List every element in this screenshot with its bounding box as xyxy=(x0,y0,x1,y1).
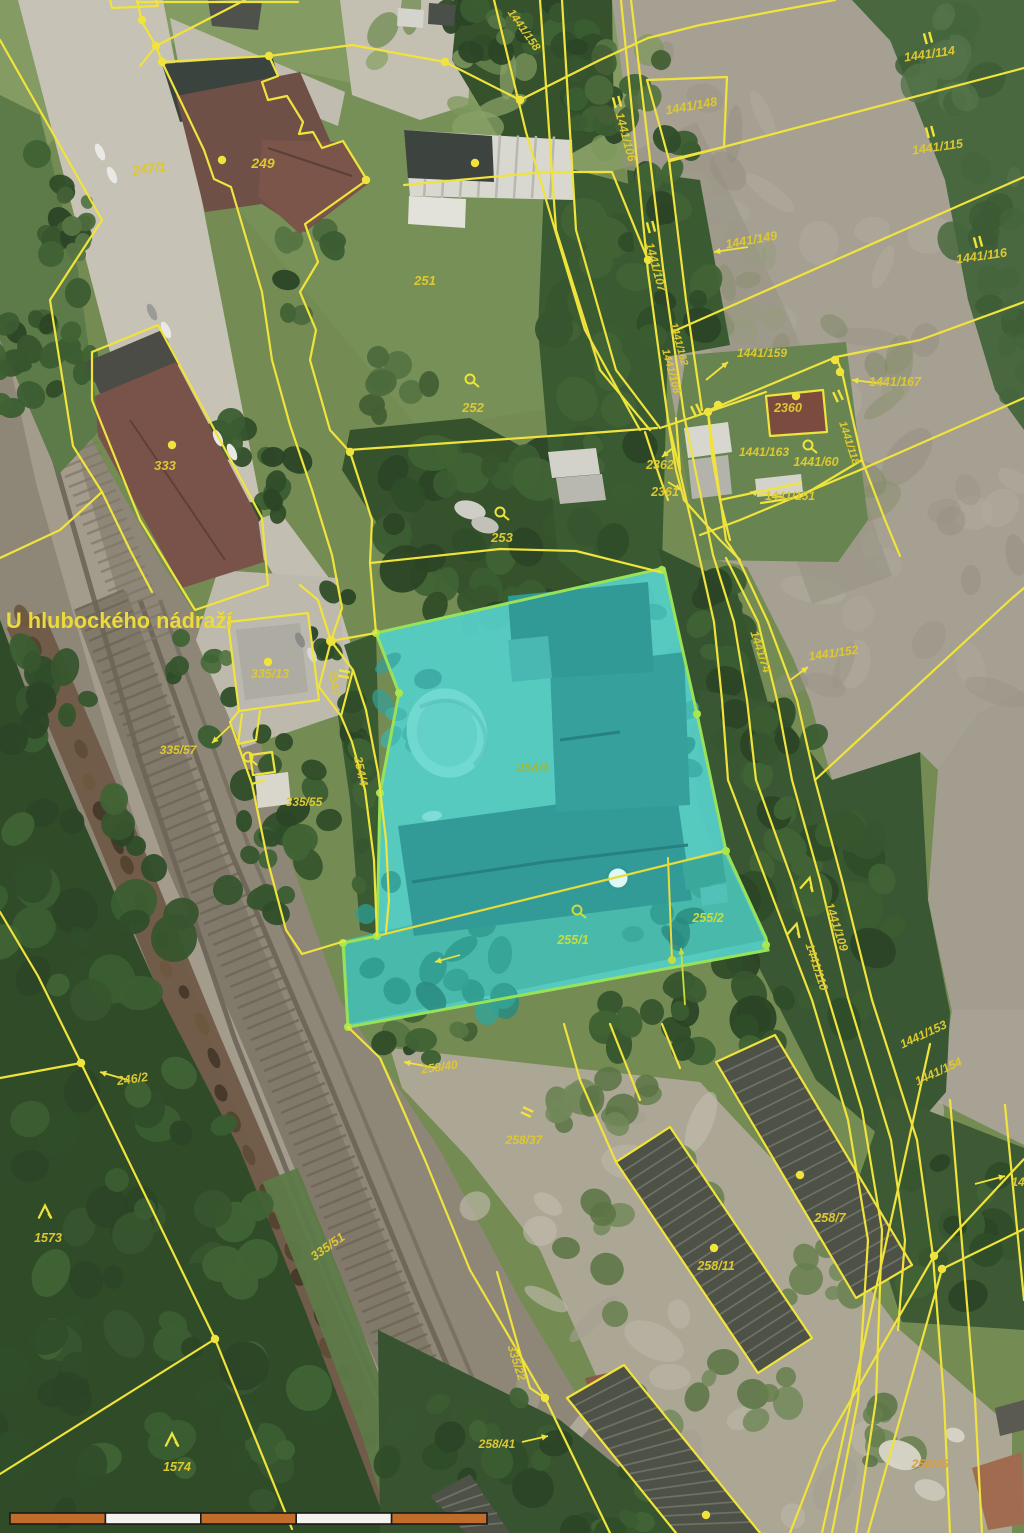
svg-text:255/1: 255/1 xyxy=(556,933,588,947)
svg-text:252: 252 xyxy=(461,400,484,415)
svg-text:258/7: 258/7 xyxy=(813,1211,846,1225)
svg-text:1441/60: 1441/60 xyxy=(793,455,838,469)
svg-text:14: 14 xyxy=(1011,1175,1024,1189)
svg-text:333: 333 xyxy=(154,458,176,473)
svg-text:1573: 1573 xyxy=(34,1231,62,1245)
svg-text:249: 249 xyxy=(250,155,275,171)
svg-text:1441/151: 1441/151 xyxy=(765,489,815,503)
svg-text:1441/159: 1441/159 xyxy=(737,346,787,360)
svg-text:258/11: 258/11 xyxy=(696,1259,734,1273)
svg-text:U hlubockého nádraží: U hlubockého nádraží xyxy=(6,608,233,633)
svg-text:258/41: 258/41 xyxy=(478,1437,516,1451)
svg-text:335/55: 335/55 xyxy=(286,795,323,809)
svg-text:335/13: 335/13 xyxy=(251,667,289,681)
svg-text:251: 251 xyxy=(413,273,436,288)
svg-text:254/1: 254/1 xyxy=(516,760,550,775)
svg-text:2361: 2361 xyxy=(650,485,679,499)
svg-text:255/2: 255/2 xyxy=(691,911,723,925)
svg-text:1441/167: 1441/167 xyxy=(869,375,922,389)
svg-text:258/37: 258/37 xyxy=(505,1133,544,1147)
svg-text:258/46: 258/46 xyxy=(911,1457,949,1471)
svg-text:2360: 2360 xyxy=(773,401,802,415)
svg-text:335/57: 335/57 xyxy=(160,743,198,757)
svg-text:253: 253 xyxy=(490,530,513,545)
svg-text:1441/163: 1441/163 xyxy=(739,445,789,459)
svg-text:2362: 2362 xyxy=(645,458,674,472)
svg-text:1574: 1574 xyxy=(163,1460,191,1474)
